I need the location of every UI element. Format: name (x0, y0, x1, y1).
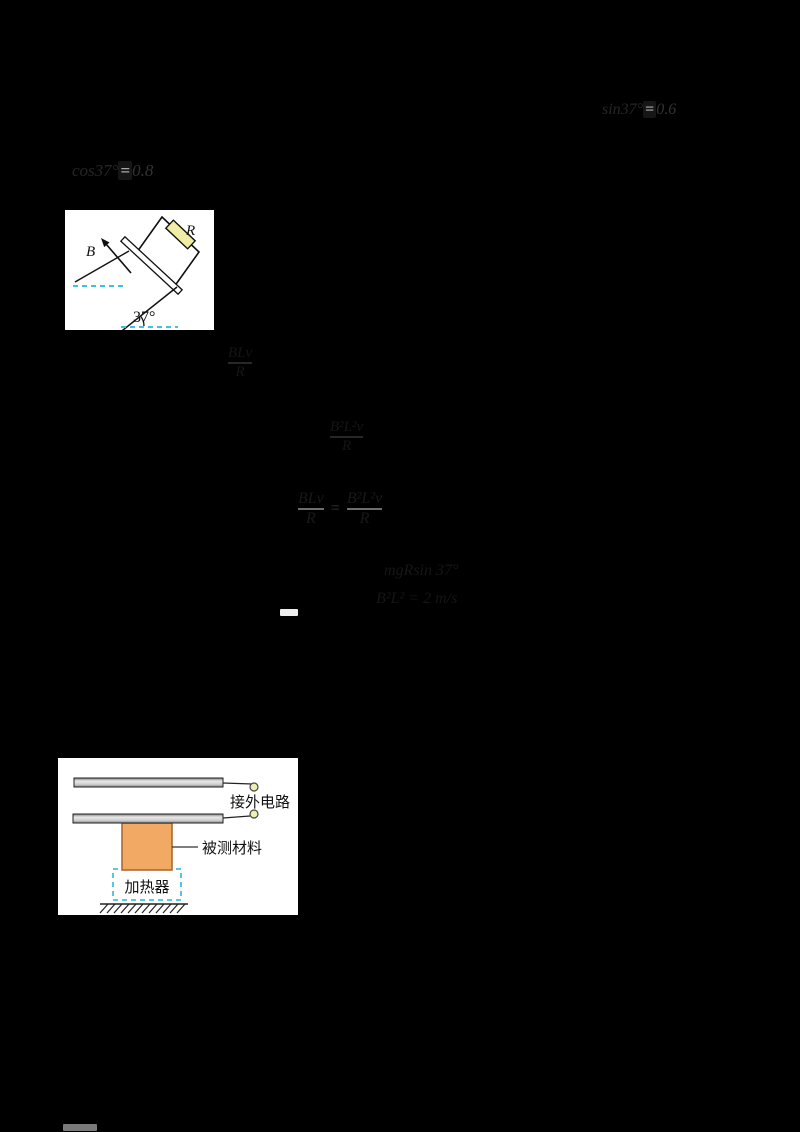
sample-block (122, 823, 172, 870)
bottom-wire (223, 816, 250, 818)
numerator: B²L²v (330, 419, 363, 436)
fraction: B²L²v R (330, 419, 363, 454)
thermal-apparatus-drawing: 接外电路 被测材料 加热器 (58, 758, 298, 915)
white-dash-mark (280, 609, 298, 616)
b-field-arrow-shaft (106, 244, 131, 273)
top-wire (223, 783, 252, 784)
document-page: sin37°=0.6 cos37°=0.8 R B 37° (0, 0, 800, 1132)
terminal-top (250, 783, 258, 791)
denominator: R (236, 364, 245, 381)
left-fraction: BLv R (298, 490, 324, 527)
sin-prefix: sin37° (602, 101, 643, 118)
numerator: BLv (298, 490, 324, 508)
numerator: BLv (228, 345, 252, 362)
sin-value: 0.6 (656, 101, 676, 118)
equals-sign: = (118, 161, 132, 180)
cos-value: 0.8 (132, 161, 153, 180)
formula-balance-equation: BLv R = B²L²v R (298, 490, 382, 527)
cos-prefix: cos37° (72, 161, 118, 180)
figure-incline-circuit: R B 37° (65, 210, 214, 330)
sample-label: 被测材料 (202, 840, 262, 857)
denominator: R (360, 510, 370, 528)
top-plate (74, 778, 223, 787)
bottom-artifact-bar (63, 1124, 97, 1131)
formula-magnetic-force: B²L²v R (330, 419, 363, 454)
terminal-bottom (250, 810, 258, 818)
denominator: R (306, 510, 316, 528)
denominator: R (342, 438, 351, 455)
angle-label: 37° (133, 309, 155, 326)
resistor-label: R (185, 223, 195, 239)
b-field-label: B (86, 244, 95, 260)
numerator: B²L²v (347, 490, 382, 508)
bottom-plate (73, 814, 223, 823)
formula-result-line1: mgRsin 37° (384, 562, 458, 580)
incline-edge-left (75, 251, 129, 282)
ground-hatching (100, 904, 185, 913)
incline-circuit-drawing: R B 37° (65, 210, 214, 330)
equals-sign: = (643, 101, 656, 118)
heater-label: 加热器 (124, 879, 169, 896)
formula-induced-current: BLv R (228, 345, 252, 380)
external-circuit-label: 接外电路 (230, 794, 290, 811)
right-fraction: B²L²v R (347, 490, 382, 527)
figure-thermal-apparatus: 接外电路 被测材料 加热器 (58, 758, 298, 915)
fraction: BLv R (228, 345, 252, 380)
equals-sign: = (331, 500, 340, 518)
faint-text-sin37: sin37°=0.6 (602, 101, 676, 119)
faint-text-cos37: cos37°=0.8 (72, 161, 153, 181)
formula-result-line2: B²L² = 2 m/s (376, 590, 457, 608)
